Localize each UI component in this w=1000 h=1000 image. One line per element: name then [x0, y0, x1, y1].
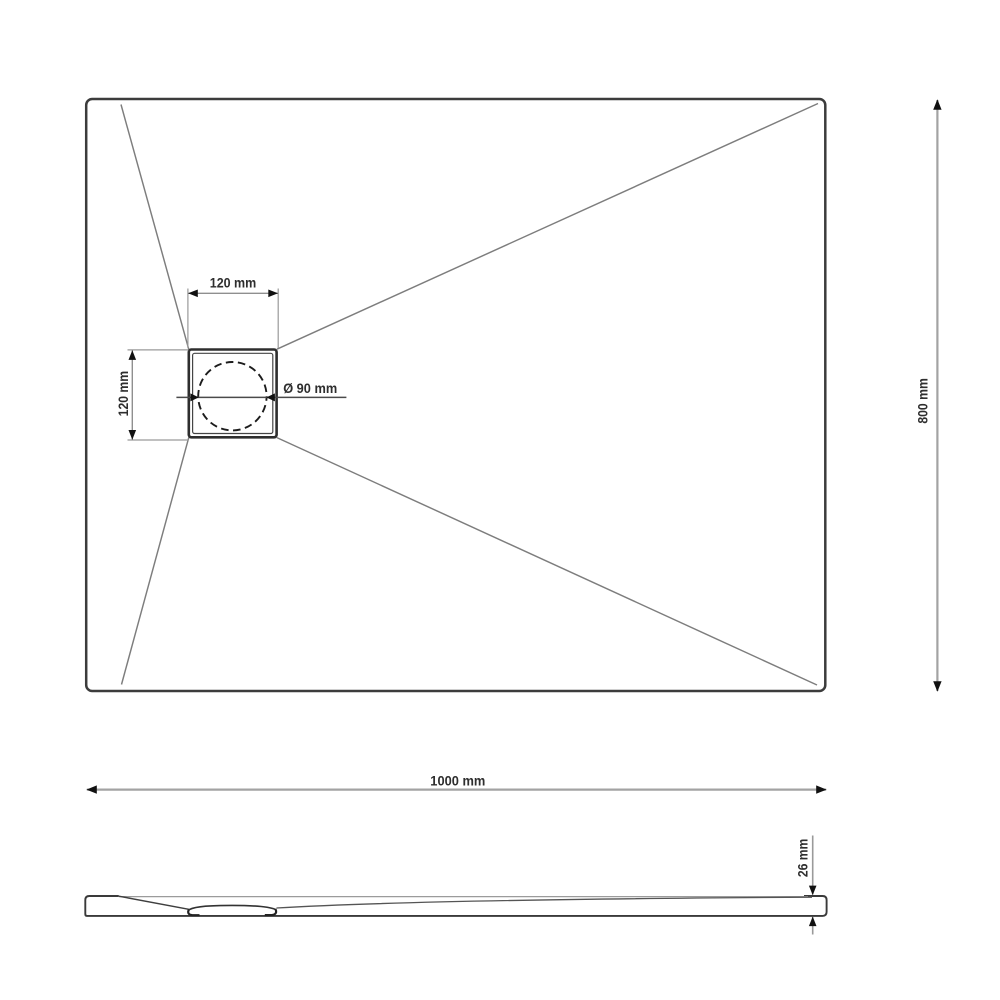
svg-text:26 mm: 26 mm [796, 839, 811, 878]
svg-text:120 mm: 120 mm [210, 276, 257, 291]
svg-text:1000 mm: 1000 mm [430, 774, 485, 789]
svg-text:Ø 90 mm: Ø 90 mm [283, 381, 337, 396]
svg-text:800 mm: 800 mm [916, 378, 931, 424]
svg-text:120 mm: 120 mm [116, 371, 131, 417]
